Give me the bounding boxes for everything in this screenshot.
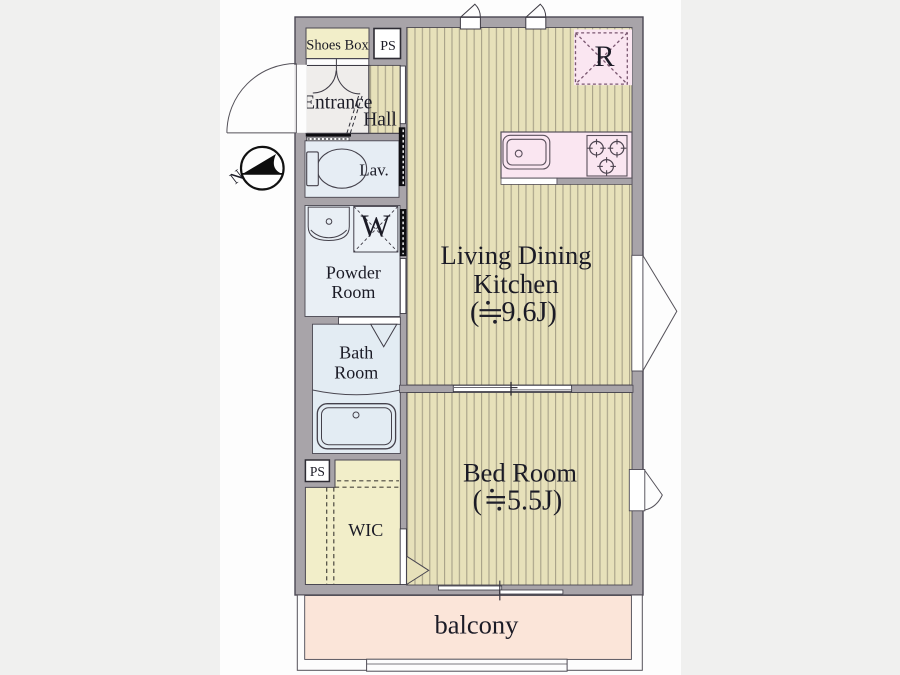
svg-text:Shoes Box: Shoes Box (306, 38, 369, 54)
svg-text:balcony: balcony (434, 610, 519, 640)
svg-text:Kitchen: Kitchen (473, 269, 559, 299)
svg-text:5.5J): 5.5J) (507, 485, 562, 516)
svg-text:Powder: Powder (326, 263, 381, 283)
svg-text:Hall: Hall (363, 110, 397, 131)
svg-text:R: R (594, 40, 614, 73)
svg-text:9.6J): 9.6J) (502, 297, 557, 328)
svg-text:(: ( (470, 297, 479, 328)
svg-text:PS: PS (380, 39, 396, 54)
svg-text:(: ( (473, 485, 482, 516)
svg-text:Bath: Bath (339, 342, 373, 362)
svg-text:PS: PS (310, 464, 325, 479)
svg-text:Room: Room (331, 282, 375, 302)
svg-text:Lav.: Lav. (359, 161, 389, 180)
svg-text:Bed Room: Bed Room (463, 458, 577, 488)
svg-text:Entrance: Entrance (303, 93, 372, 114)
svg-text:Room: Room (334, 363, 378, 383)
svg-text:W: W (361, 208, 391, 243)
svg-text:Living Dining: Living Dining (441, 240, 592, 270)
svg-text:WIC: WIC (348, 520, 383, 540)
